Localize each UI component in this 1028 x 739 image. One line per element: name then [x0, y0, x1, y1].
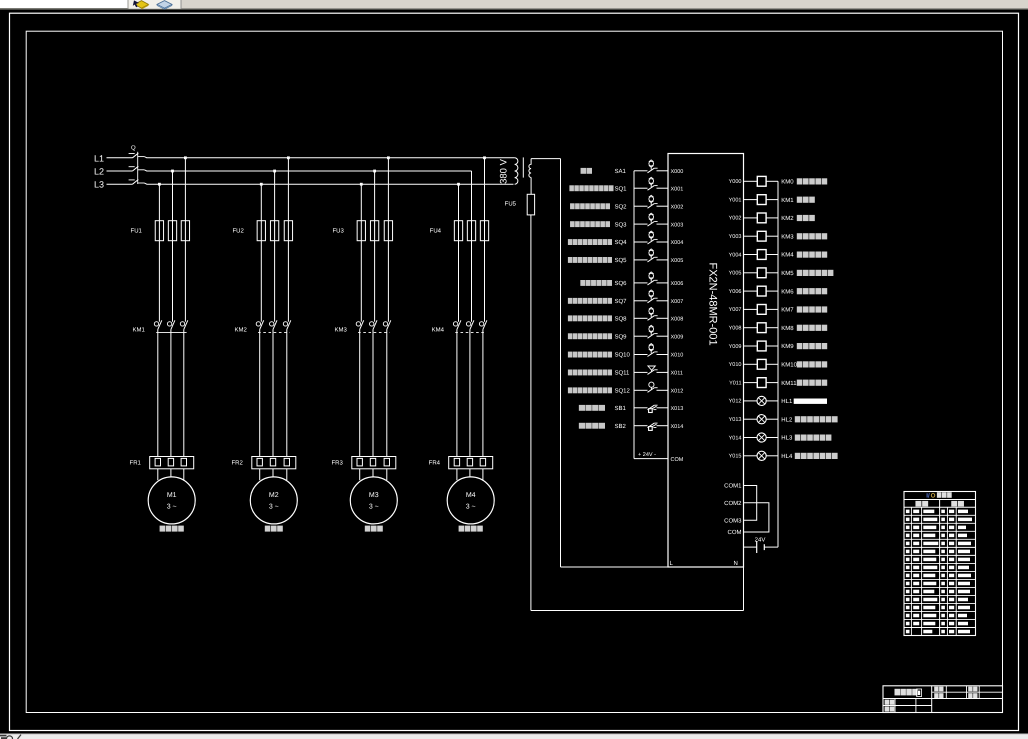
svg-text:M4: M4 — [466, 492, 476, 499]
svg-text:X014: X014 — [671, 424, 684, 430]
svg-text:COM: COM — [671, 457, 684, 463]
svg-text:Y001: Y001 — [729, 197, 742, 203]
svg-text:FR3: FR3 — [331, 460, 343, 467]
svg-text:SA1: SA1 — [615, 168, 627, 175]
svg-text:Y007: Y007 — [729, 307, 742, 313]
svg-text:KM2: KM2 — [781, 215, 794, 222]
svg-text:KM0: KM0 — [781, 179, 794, 186]
svg-text:SQ11: SQ11 — [615, 370, 631, 377]
svg-text:N: N — [734, 560, 738, 567]
svg-text:X012: X012 — [671, 389, 684, 395]
svg-text:KM6: KM6 — [781, 288, 794, 295]
svg-text:SQ4: SQ4 — [615, 239, 628, 246]
svg-text:Y015: Y015 — [729, 454, 742, 460]
svg-text:M1: M1 — [167, 492, 177, 499]
svg-text:SQ8: SQ8 — [615, 316, 628, 323]
svg-text:FU1: FU1 — [131, 228, 143, 235]
svg-text:+ 24V -: + 24V - — [638, 452, 656, 458]
svg-text:SQ12: SQ12 — [615, 388, 631, 395]
svg-text:SQ9: SQ9 — [615, 333, 628, 340]
svg-text:SB1: SB1 — [615, 405, 627, 412]
svg-text:3 ~: 3 ~ — [167, 504, 177, 511]
svg-text:Y002: Y002 — [729, 216, 742, 222]
svg-text:FU2: FU2 — [232, 228, 244, 235]
svg-text:X011: X011 — [671, 371, 683, 377]
svg-text:SB2: SB2 — [615, 423, 627, 430]
svg-text:X003: X003 — [671, 222, 684, 228]
svg-text:KM9: KM9 — [781, 343, 794, 350]
svg-text:FR4: FR4 — [429, 460, 441, 467]
svg-text:FR2: FR2 — [231, 460, 243, 467]
svg-text:X002: X002 — [671, 204, 684, 210]
svg-text:X010: X010 — [671, 353, 684, 359]
svg-text:L1: L1 — [94, 154, 104, 164]
svg-text:KM10: KM10 — [781, 362, 797, 369]
svg-text:X000: X000 — [671, 169, 684, 175]
svg-text:COM: COM — [728, 529, 742, 536]
svg-text:KM11: KM11 — [781, 380, 797, 387]
svg-text:FU5: FU5 — [505, 201, 517, 208]
svg-text:3 ~: 3 ~ — [369, 504, 379, 511]
svg-text:Y013: Y013 — [729, 417, 742, 423]
svg-text:COM3: COM3 — [724, 517, 742, 524]
svg-text:KM3: KM3 — [334, 326, 347, 333]
svg-text:Y011: Y011 — [729, 380, 741, 386]
svg-text:SQ7: SQ7 — [615, 298, 628, 305]
svg-text:X006: X006 — [671, 281, 684, 287]
svg-text:X008: X008 — [671, 317, 684, 323]
svg-text:KM1: KM1 — [133, 326, 146, 333]
svg-text:Y000: Y000 — [729, 179, 742, 185]
svg-text:X013: X013 — [671, 406, 684, 412]
svg-text:SQ1: SQ1 — [615, 185, 628, 192]
svg-text:L3: L3 — [94, 180, 104, 190]
svg-text:L2: L2 — [94, 167, 104, 177]
svg-text:KM3: KM3 — [781, 233, 794, 240]
svg-text:3 ~: 3 ~ — [466, 504, 476, 511]
svg-text:KM7: KM7 — [781, 307, 794, 314]
svg-text:Y010: Y010 — [729, 362, 742, 368]
svg-text:SQ10: SQ10 — [615, 352, 631, 359]
svg-text:HL4: HL4 — [781, 453, 793, 460]
svg-text:M3: M3 — [369, 492, 379, 499]
svg-text:Y006: Y006 — [729, 289, 742, 295]
svg-text:Q: Q — [131, 145, 136, 152]
svg-text:Y014: Y014 — [729, 435, 742, 441]
svg-text:KM5: KM5 — [781, 270, 794, 277]
svg-text:KM8: KM8 — [781, 325, 794, 332]
svg-text:COM1: COM1 — [724, 483, 742, 490]
svg-text:SQ6: SQ6 — [615, 280, 628, 287]
svg-text:FU4: FU4 — [430, 228, 442, 235]
svg-text:SQ2: SQ2 — [615, 203, 628, 210]
svg-text:I/: I/ — [926, 493, 930, 500]
svg-text:KM4: KM4 — [781, 252, 794, 259]
svg-text:Y003: Y003 — [729, 234, 742, 240]
svg-text:Y009: Y009 — [729, 344, 742, 350]
svg-text:24V: 24V — [755, 537, 766, 544]
svg-text:X005: X005 — [671, 258, 684, 264]
svg-text:HL1: HL1 — [781, 398, 793, 405]
svg-text:HL2: HL2 — [781, 416, 793, 423]
svg-text:Y008: Y008 — [729, 326, 742, 332]
svg-text:O: O — [931, 493, 936, 500]
svg-text:Y012: Y012 — [729, 399, 742, 405]
svg-text:3 ~: 3 ~ — [269, 504, 279, 511]
svg-text:HL3: HL3 — [781, 435, 793, 442]
svg-text:Y004: Y004 — [729, 252, 742, 258]
svg-text:Y005: Y005 — [729, 271, 742, 277]
svg-text:KM1: KM1 — [781, 197, 794, 204]
svg-text:COM2: COM2 — [724, 500, 742, 507]
svg-text:FX2N-48MR-001: FX2N-48MR-001 — [707, 263, 719, 346]
svg-text:KM2: KM2 — [234, 326, 247, 333]
svg-text:SQ5: SQ5 — [615, 257, 628, 264]
svg-text:X007: X007 — [671, 299, 684, 305]
svg-text:FR1: FR1 — [130, 460, 142, 467]
svg-text:SQ3: SQ3 — [615, 221, 628, 228]
svg-text:FU3: FU3 — [332, 228, 344, 235]
svg-text:X004: X004 — [671, 240, 684, 246]
svg-text:M2: M2 — [269, 492, 279, 499]
svg-text:KM4: KM4 — [432, 326, 445, 333]
svg-text:X001: X001 — [671, 186, 684, 192]
svg-text:X009: X009 — [671, 334, 684, 340]
svg-text:380 V: 380 V — [499, 158, 510, 183]
